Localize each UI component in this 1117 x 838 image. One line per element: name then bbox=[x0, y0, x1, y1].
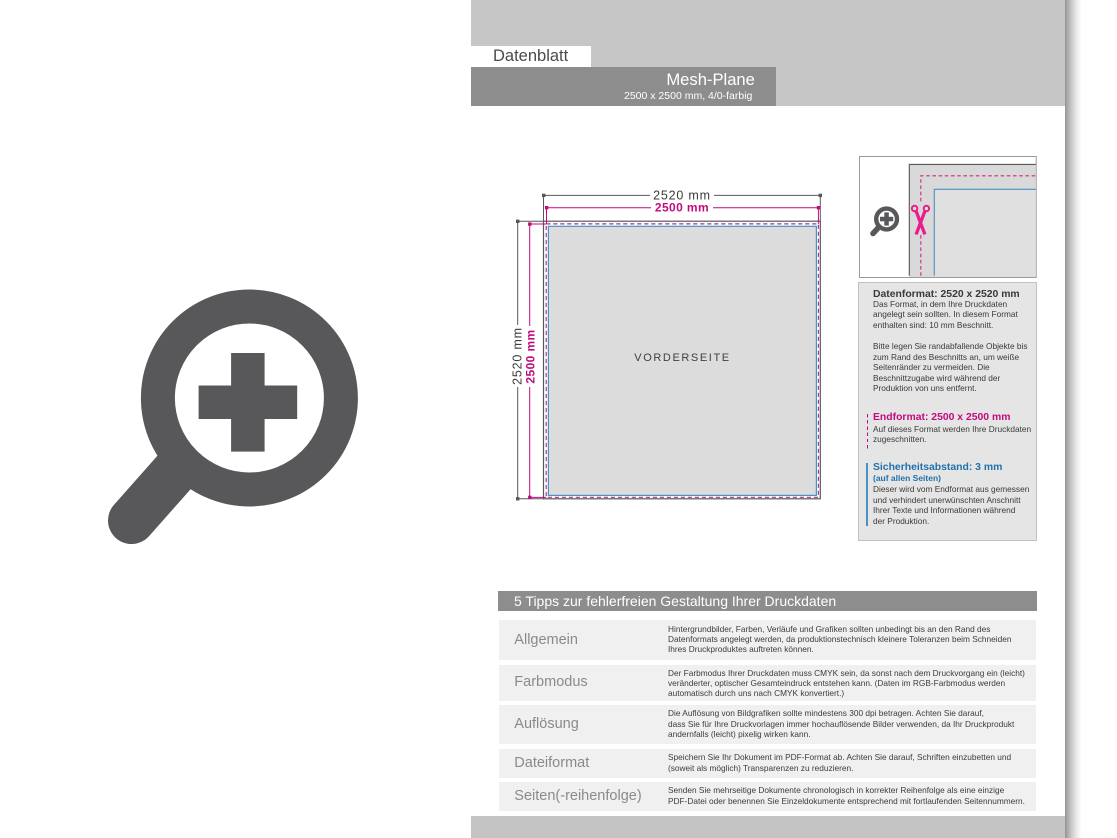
svg-text:VORDERSEITE: VORDERSEITE bbox=[634, 352, 730, 364]
svg-text:2500 mm: 2500 mm bbox=[655, 201, 709, 215]
svg-text:2520 mm: 2520 mm bbox=[510, 327, 524, 385]
svg-text:2500 mm: 2500 mm bbox=[524, 329, 538, 383]
